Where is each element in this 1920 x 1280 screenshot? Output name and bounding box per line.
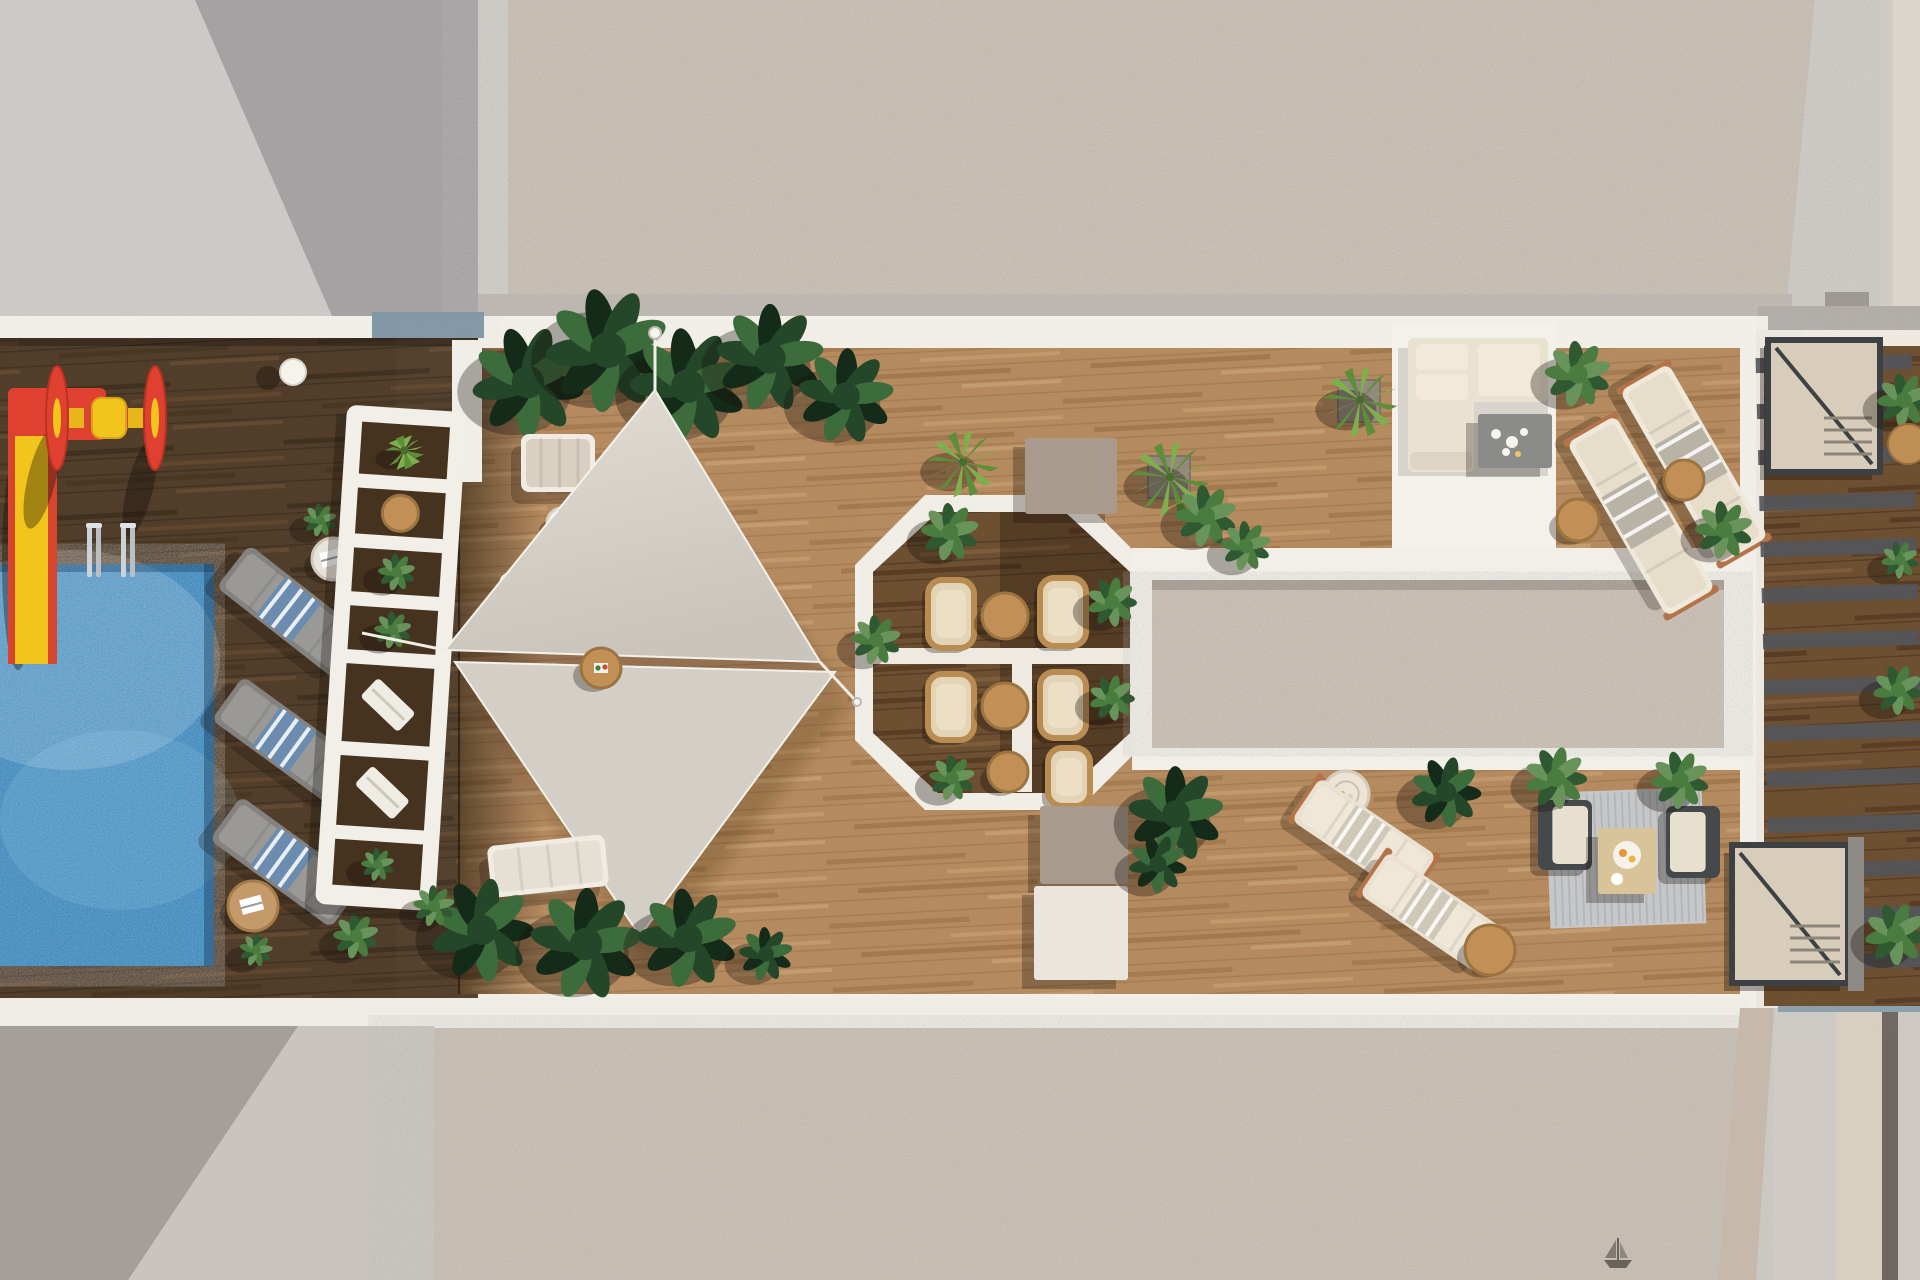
strip-br-dark bbox=[1882, 1008, 1898, 1280]
gray-paver-pad bbox=[1013, 438, 1117, 523]
drink bbox=[595, 665, 600, 670]
strip-br-wood bbox=[1836, 1008, 1882, 1280]
table-top bbox=[982, 593, 1028, 639]
pad-top bbox=[1025, 438, 1117, 514]
leaf-center bbox=[590, 332, 626, 368]
cushion bbox=[1478, 344, 1540, 396]
gravel-court bbox=[1152, 580, 1724, 748]
leaf-center bbox=[758, 946, 774, 962]
flower bbox=[1491, 429, 1501, 439]
slide-rail bbox=[8, 436, 15, 664]
leaf-center bbox=[428, 900, 440, 912]
leaf-center bbox=[1895, 555, 1906, 566]
fruit bbox=[1619, 849, 1627, 857]
wall-strip-top-right bbox=[1893, 0, 1920, 310]
table-top bbox=[982, 683, 1028, 729]
rattan-cafe-chair bbox=[922, 674, 974, 745]
slat bbox=[577, 438, 580, 488]
sail-anchor bbox=[853, 698, 861, 706]
stairwell-upper bbox=[1760, 340, 1880, 480]
spinner-drum bbox=[92, 398, 126, 438]
armchair-cushion bbox=[1552, 806, 1588, 864]
ladder-rail bbox=[130, 527, 135, 577]
wheel-hub bbox=[151, 398, 159, 438]
rattan-cafe-chair bbox=[922, 580, 974, 653]
slat bbox=[558, 438, 561, 488]
gravel-roof-bottom bbox=[434, 1028, 1740, 1280]
leaf-center bbox=[1568, 364, 1587, 383]
coffee-table bbox=[1466, 414, 1552, 477]
sail-anchor bbox=[853, 698, 861, 706]
octagon-mullion-h bbox=[873, 648, 1130, 664]
border-shadow-left bbox=[0, 338, 478, 346]
bottom-white-border bbox=[0, 998, 1748, 1028]
leaf-center bbox=[945, 771, 958, 784]
sail-mast bbox=[649, 327, 661, 339]
rattan-cafe-chair bbox=[1042, 748, 1090, 811]
ladder-rail bbox=[121, 527, 126, 577]
leaf-center bbox=[674, 924, 703, 953]
pad-top bbox=[1034, 886, 1128, 980]
rattan-chair-below bbox=[1888, 424, 1920, 464]
wheel-hub bbox=[53, 398, 61, 438]
leaf-center bbox=[1105, 691, 1118, 704]
leaf-center bbox=[754, 342, 785, 373]
ladder-rail bbox=[96, 527, 101, 577]
cushion bbox=[936, 684, 966, 730]
bowl bbox=[1611, 873, 1623, 885]
drink bbox=[602, 664, 607, 669]
leaf-center bbox=[1197, 507, 1215, 525]
leaf-center bbox=[671, 369, 705, 403]
leaf-center bbox=[1105, 595, 1119, 609]
armchair-cushion bbox=[1670, 812, 1706, 872]
leaf-center bbox=[1436, 782, 1456, 802]
yucca-center bbox=[1356, 396, 1364, 404]
yucca-center bbox=[959, 458, 967, 466]
strip-br-light bbox=[1898, 1008, 1920, 1280]
leaf-center bbox=[1672, 772, 1689, 789]
shadow bbox=[256, 366, 280, 390]
flower bbox=[1506, 436, 1518, 448]
cushion bbox=[1416, 344, 1468, 370]
rooftop-terrace-scene bbox=[0, 0, 1920, 1280]
table-top bbox=[1664, 460, 1704, 500]
flower bbox=[1502, 448, 1510, 456]
leaf-center bbox=[570, 928, 602, 960]
strip-br-pavement bbox=[1774, 1008, 1836, 1280]
cushion bbox=[936, 590, 966, 638]
leaf-center bbox=[1887, 925, 1905, 943]
step-top-right bbox=[1825, 292, 1869, 306]
leaf-center bbox=[1891, 683, 1905, 697]
wall-gap-strip bbox=[478, 0, 510, 322]
ladder-top bbox=[120, 523, 136, 528]
leaf-center bbox=[1239, 539, 1253, 553]
cushion bbox=[1048, 682, 1078, 728]
plate bbox=[1613, 841, 1641, 869]
leaf-center bbox=[1162, 800, 1190, 828]
ladder-rail bbox=[87, 527, 92, 577]
flower bbox=[1520, 428, 1528, 436]
leaf-center bbox=[467, 915, 497, 945]
lamp-head bbox=[280, 359, 306, 385]
stairwell-lower bbox=[1724, 837, 1864, 991]
leaf-center bbox=[349, 929, 362, 942]
table-top bbox=[988, 752, 1028, 792]
tray-table bbox=[1586, 828, 1656, 903]
balustrade-glass bbox=[372, 312, 484, 338]
lounge-armchair bbox=[1658, 806, 1720, 884]
ladder-top bbox=[86, 523, 102, 528]
leaf-center bbox=[1150, 856, 1167, 873]
yucca-center bbox=[1166, 473, 1174, 481]
gray-paver-pad bbox=[1028, 806, 1128, 893]
leaf-center bbox=[869, 633, 883, 647]
slat bbox=[540, 438, 543, 488]
pool-edge-dark bbox=[204, 564, 214, 966]
leaf-center bbox=[251, 945, 261, 955]
leaf-center bbox=[942, 524, 959, 541]
leaf-center bbox=[315, 515, 325, 525]
pergola-table bbox=[381, 494, 419, 532]
cushion bbox=[1056, 758, 1082, 796]
cushion bbox=[1416, 374, 1468, 400]
leaf-center bbox=[1716, 522, 1733, 539]
table-top bbox=[1465, 925, 1515, 975]
flower bbox=[1515, 451, 1521, 457]
sail-mast bbox=[649, 327, 661, 339]
leaf-center bbox=[832, 382, 860, 410]
rattan-chair-below bbox=[1888, 424, 1920, 464]
leaf-center bbox=[1547, 769, 1565, 787]
table-top bbox=[1557, 499, 1599, 541]
armrest bbox=[1410, 452, 1472, 470]
stair-wall bbox=[1848, 837, 1864, 991]
rooftop-3d-render bbox=[0, 0, 1920, 1280]
fruit bbox=[1629, 856, 1636, 863]
white-pad bbox=[1022, 886, 1128, 989]
leaf-center bbox=[1896, 392, 1912, 408]
gravel-roof-top bbox=[508, 0, 1815, 298]
